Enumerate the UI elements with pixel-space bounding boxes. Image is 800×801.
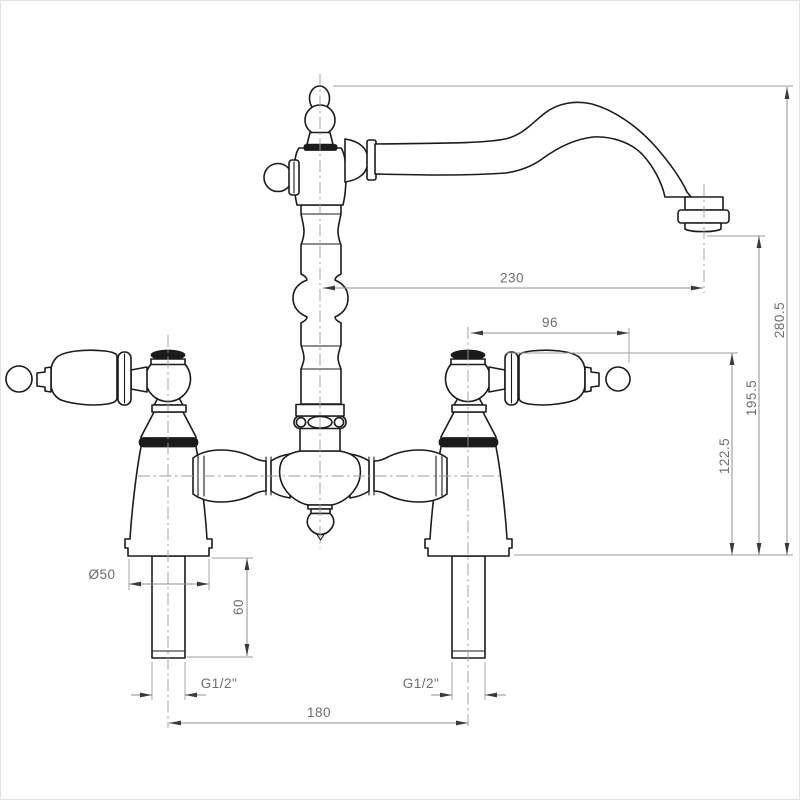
dimension-handle-length: 96: [471, 315, 629, 335]
dimension-spout-outlet-height: 195.5: [744, 236, 761, 555]
dimension-spout-reach: 230: [323, 271, 703, 291]
dimension-inlet-thread-left: G1/2": [131, 676, 237, 697]
dimension-base-diameter: Ø50: [88, 567, 209, 586]
dimension-handle-top-height: 122.5: [717, 353, 734, 555]
dim-label-overall-height: 280.5: [772, 302, 787, 338]
dim-label-handle-top-height: 122.5: [717, 438, 732, 474]
dimension-inlet-thread-right: G1/2": [403, 676, 506, 697]
left-handle: [6, 350, 147, 405]
aerator-ring-middle: [678, 210, 729, 223]
dim-label-spout-reach: 230: [500, 271, 524, 286]
left-handle-lever: [51, 350, 117, 405]
dim-label-handle-length: 96: [542, 315, 558, 330]
left-handle-ball-end: [6, 366, 32, 392]
dimension-shank-length: 60: [231, 558, 249, 656]
dimension-inlet-centres: 180: [169, 705, 468, 725]
left-base-oring: [139, 438, 198, 448]
dim-label-inlet-thread-left: G1/2": [201, 676, 238, 691]
left-valve-leg: [125, 350, 212, 658]
dim-label-shank-length: 60: [231, 599, 246, 615]
right-handle: [489, 350, 630, 405]
dim-label-base-diameter: Ø50: [88, 567, 115, 582]
faucet-technical-drawing: 230 280.5 195.5 122.5 96 Ø50 60: [1, 1, 800, 801]
center-column: [293, 205, 348, 404]
spout: [375, 102, 729, 231]
aerator-ring-bottom: [685, 223, 721, 232]
dim-label-inlet-centres: 180: [307, 705, 331, 720]
spout-tube: [375, 102, 691, 197]
dim-label-spout-outlet-height: 195.5: [744, 380, 759, 416]
right-inlet-shank: [452, 556, 485, 658]
right-valve-leg: [425, 350, 512, 658]
right-handle-ball-end: [606, 367, 630, 391]
dim-label-inlet-thread-right: G1/2": [403, 676, 440, 691]
right-handle-lever: [519, 350, 585, 405]
left-inlet-shank: [152, 556, 185, 658]
right-base-oring: [439, 438, 498, 448]
technical-drawing-page: 230 280.5 195.5 122.5 96 Ø50 60: [0, 0, 800, 800]
dimension-overall-height: 280.5: [772, 87, 789, 555]
left-cross-ball: [264, 164, 292, 192]
